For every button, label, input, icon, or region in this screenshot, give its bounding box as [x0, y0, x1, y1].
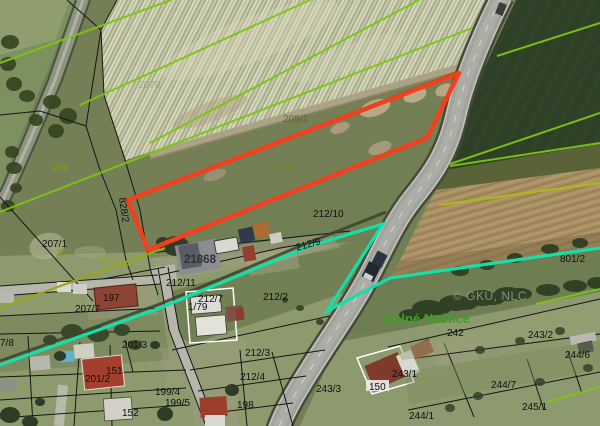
svg-text:197: 197 — [103, 293, 120, 304]
svg-text:21868: 21868 — [184, 254, 217, 266]
svg-text:212/3: 212/3 — [245, 348, 270, 359]
svg-text:243/3: 243/3 — [316, 384, 341, 395]
svg-text:242: 242 — [447, 328, 464, 339]
svg-text:212/2: 212/2 — [263, 292, 288, 303]
svg-text:201/2: 201/2 — [85, 374, 110, 385]
svg-text:© GKÚ, NLC: © GKÚ, NLC — [453, 288, 527, 303]
svg-text:201/3: 201/3 — [122, 340, 147, 351]
svg-text:207/7: 207/7 — [75, 304, 100, 315]
svg-text:243/1: 243/1 — [392, 369, 417, 380]
svg-text:208/2: 208/2 — [273, 162, 298, 173]
svg-text:207: 207 — [56, 248, 73, 259]
svg-text:244/6: 244/6 — [565, 350, 590, 361]
svg-text:209: 209 — [52, 163, 69, 174]
svg-text:7/8: 7/8 — [0, 338, 14, 349]
svg-text:2079: 2079 — [138, 80, 161, 91]
svg-text:Dolné Naštice: Dolné Naštice — [384, 311, 470, 326]
svg-text:243/2: 243/2 — [528, 330, 553, 341]
svg-text:212/4: 212/4 — [240, 372, 265, 383]
svg-text:245/1: 245/1 — [522, 402, 547, 413]
svg-text:212/10: 212/10 — [313, 209, 344, 220]
svg-text:212/11: 212/11 — [166, 278, 196, 289]
svg-text:198: 198 — [237, 400, 254, 411]
svg-text:208/1: 208/1 — [283, 114, 308, 125]
svg-text:244/1: 244/1 — [409, 411, 434, 422]
svg-text:199/5: 199/5 — [165, 398, 190, 409]
svg-text:199/4: 199/4 — [155, 387, 180, 398]
svg-text:150: 150 — [369, 382, 386, 393]
svg-text:244/7: 244/7 — [491, 380, 516, 391]
svg-text:1/79: 1/79 — [188, 302, 208, 313]
svg-text:801/2: 801/2 — [560, 254, 585, 265]
svg-text:152: 152 — [122, 408, 139, 419]
